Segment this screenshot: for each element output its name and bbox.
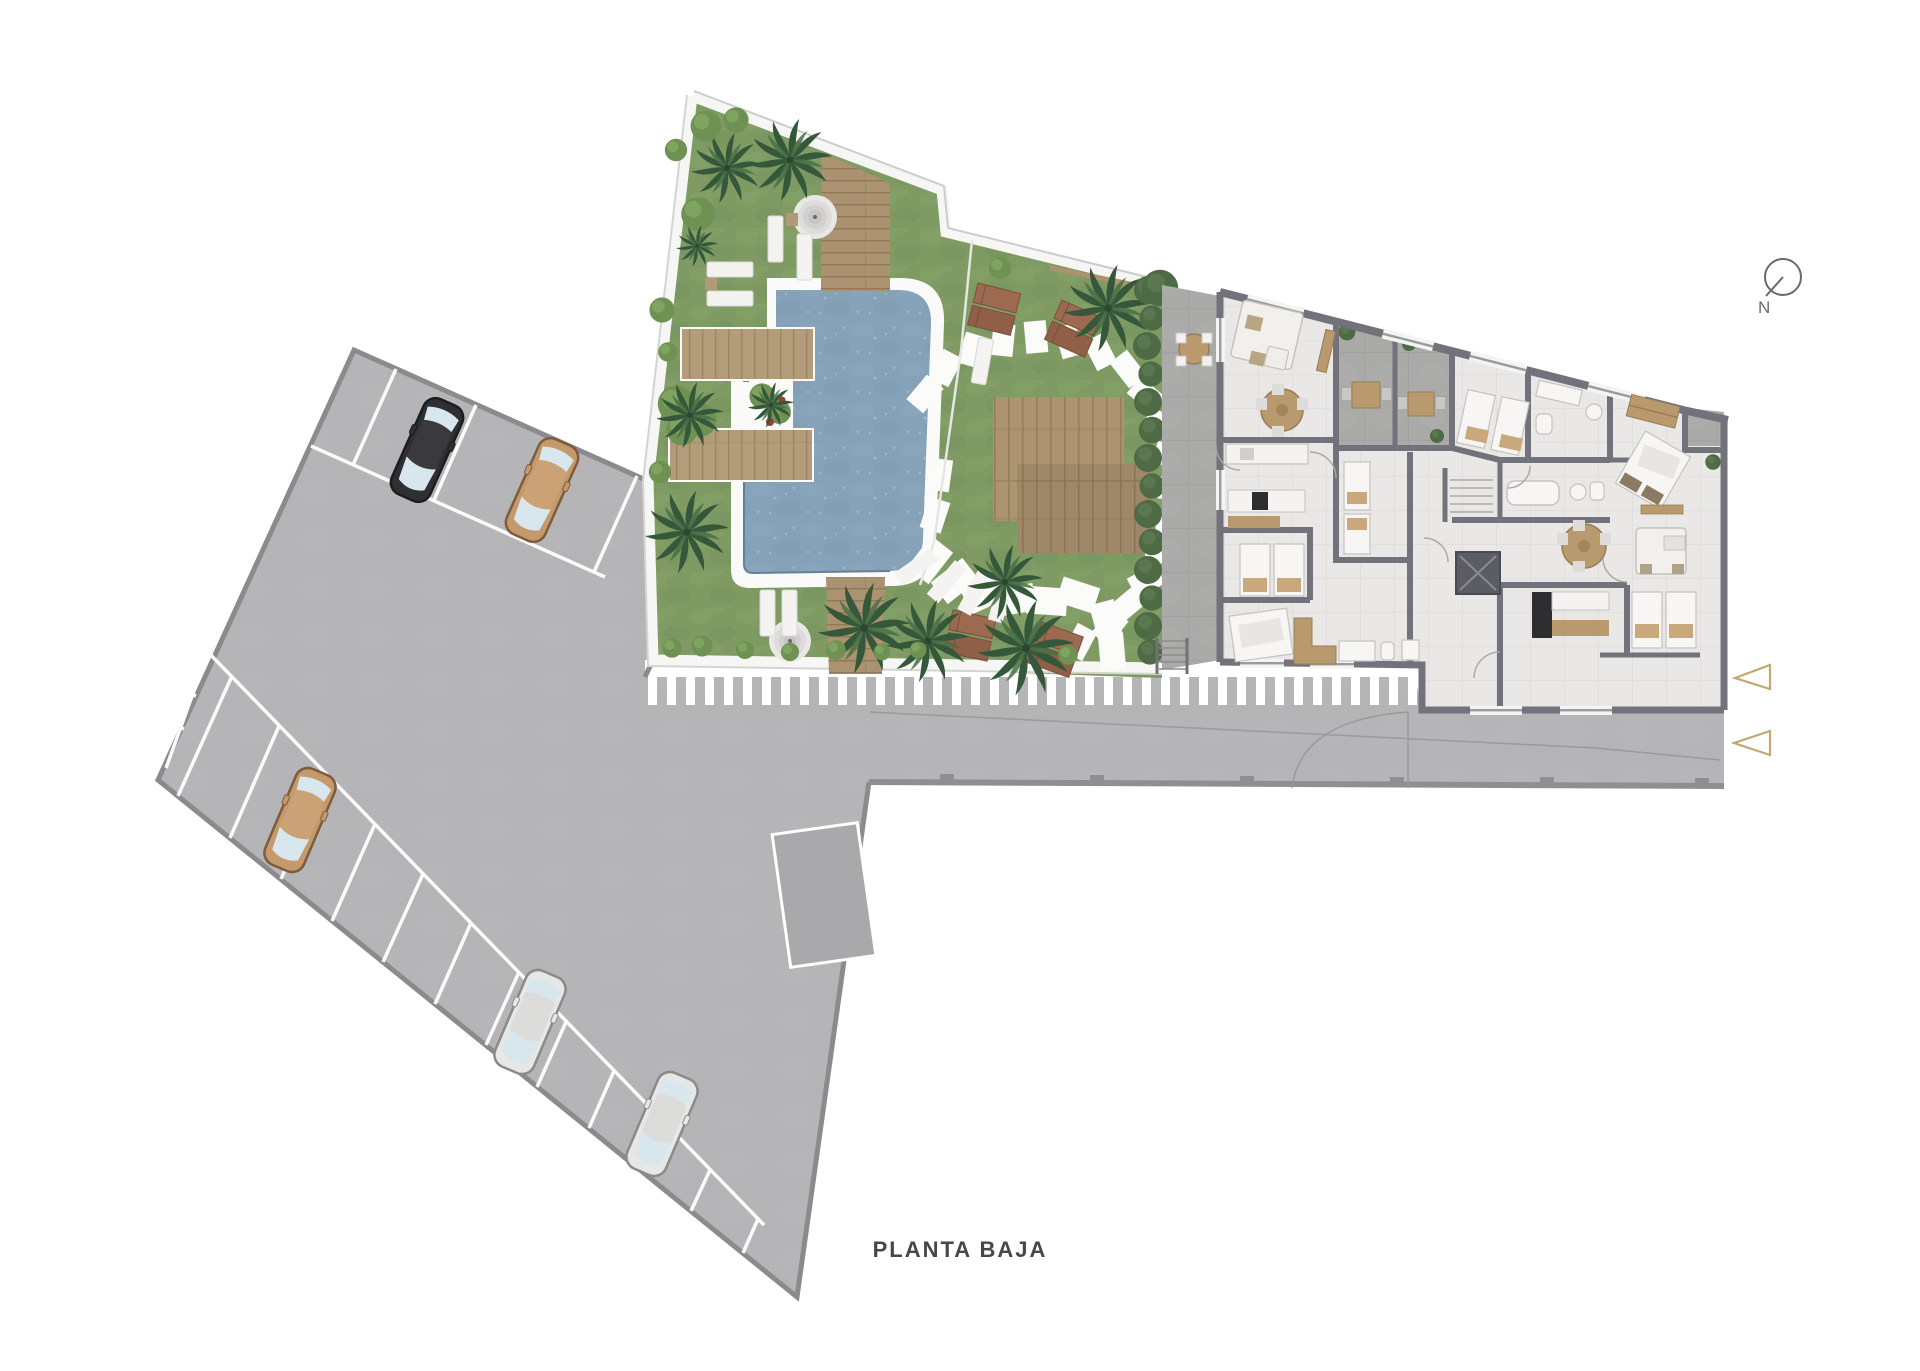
svg-text:N: N bbox=[1758, 298, 1770, 317]
svg-text:PLANTA BAJA: PLANTA BAJA bbox=[873, 1237, 1048, 1262]
